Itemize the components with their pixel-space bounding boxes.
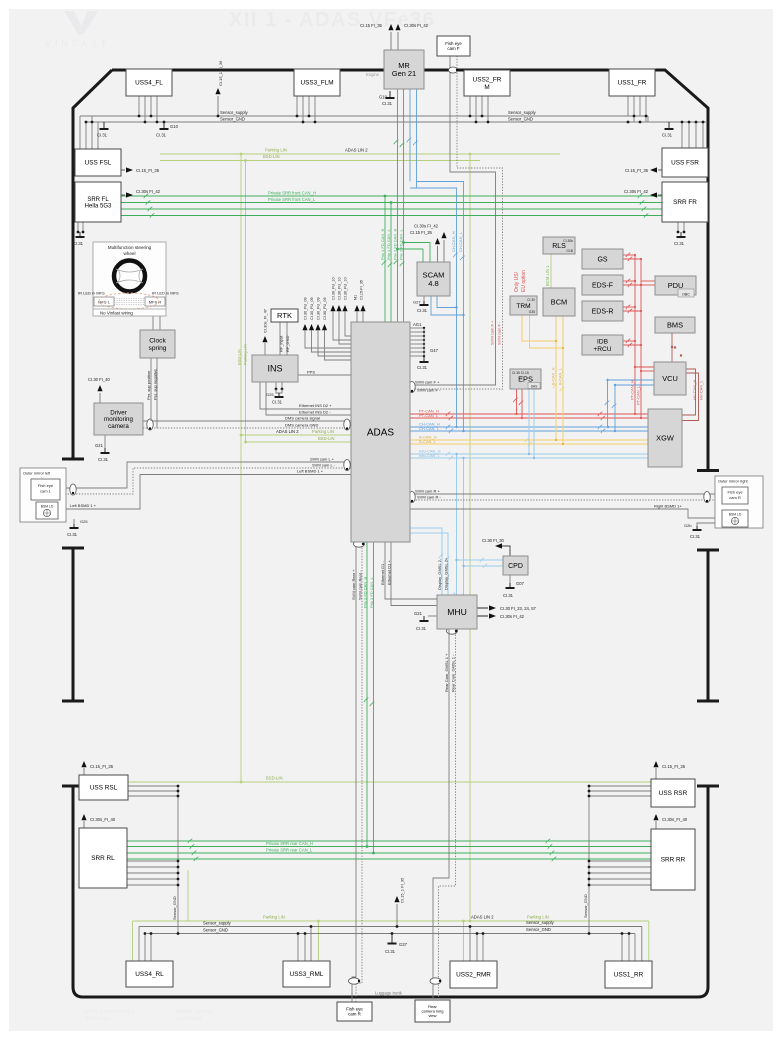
svg-text:Priv 3 FD CAN_L: Priv 3 FD CAN_L xyxy=(369,577,374,608)
svg-text:Private SRR front CAN_H: Private SRR front CAN_H xyxy=(268,191,316,196)
svg-text:Parking LIN: Parking LIN xyxy=(527,915,549,920)
svg-text:CI.15_1 FI_36: CI.15_1 FI_36 xyxy=(218,60,223,86)
svg-text:Ethernet D1 -: Ethernet D1 - xyxy=(380,561,385,585)
svg-text:CI.31: CI.31 xyxy=(662,133,673,138)
svg-text:CI.30: CI.30 xyxy=(527,298,535,302)
svg-text:Gen 21: Gen 21 xyxy=(392,69,416,78)
svg-text:Outer mirror left: Outer mirror left xyxy=(23,471,51,476)
svg-text:wheel: wheel xyxy=(123,251,135,256)
svg-text:TRM: TRM xyxy=(516,303,530,310)
svg-text:CI.15_FI_35: CI.15_FI_35 xyxy=(625,168,649,173)
svg-text:SRR FR: SRR FR xyxy=(673,199,697,206)
svg-text:CI.31: CI.31 xyxy=(690,534,701,539)
svg-text:Left BSMD 1 +: Left BSMD 1 + xyxy=(70,503,97,508)
svg-text:CI.35 CI.15: CI.35 CI.15 xyxy=(512,371,529,375)
svg-text:MHU: MHU xyxy=(447,607,467,617)
svg-text:Right BSMD 1+: Right BSMD 1+ xyxy=(654,504,682,509)
svg-text:B-CAN_H: B-CAN_H xyxy=(551,367,556,385)
svg-text:CI.30_FU_09: CI.30_FU_09 xyxy=(304,297,308,320)
svg-text:BSD-LIN: BSD-LIN xyxy=(266,776,283,781)
svg-text:CH-CAN_H: CH-CAN_H xyxy=(451,231,456,252)
svg-text:SVM cam Rear +: SVM cam Rear + xyxy=(351,569,356,600)
svg-text:RF_input: RF_input xyxy=(279,335,284,352)
svg-text:Per. sup positive: Per. sup positive xyxy=(146,370,151,400)
svg-text:Sensor_GND: Sensor_GND xyxy=(172,896,177,920)
svg-text:Per. sup negative: Per. sup negative xyxy=(153,368,158,400)
svg-text:wiring diagram rev 2.1: wiring diagram rev 2.1 xyxy=(85,1009,134,1015)
svg-text:G1B: G1B xyxy=(566,249,573,253)
svg-text:HV-CAN_H: HV-CAN_H xyxy=(692,380,697,400)
svg-text:INS: INS xyxy=(267,364,282,374)
svg-text:Private SRR rear CAN_L: Private SRR rear CAN_L xyxy=(266,848,313,853)
svg-text:DMS camera signal: DMS camera signal xyxy=(285,416,320,421)
svg-text:G10: G10 xyxy=(379,95,388,100)
svg-text:cam F: cam F xyxy=(447,46,460,51)
svg-text:XGW: XGW xyxy=(656,434,674,443)
svg-text:ADAS LIN 2: ADAS LIN 2 xyxy=(345,148,368,153)
svg-text:CH-CAN_L: CH-CAN_L xyxy=(419,426,440,431)
svg-text:BSM LD: BSM LD xyxy=(41,505,54,509)
svg-text:PT-CAN_L: PT-CAN_L xyxy=(636,385,641,405)
svg-text:CI.31: CI.31 xyxy=(73,241,84,246)
svg-text:IR LED in MFS: IR LED in MFS xyxy=(78,291,105,296)
svg-text:CI.31: CI.31 xyxy=(674,241,685,246)
svg-text:CI.30s_FI_47: CI.30s_FI_47 xyxy=(263,308,268,333)
svg-text:SVM cam Rear -: SVM cam Rear - xyxy=(358,570,363,600)
svg-text:Sensor_GND: Sensor_GND xyxy=(203,928,228,933)
svg-text:Sensor_GND: Sensor_GND xyxy=(508,117,533,122)
svg-text:Sensor_GND: Sensor_GND xyxy=(526,927,551,932)
svg-text:CI.31: CI.31 xyxy=(416,626,427,631)
svg-text:DMS camera GND: DMS camera GND xyxy=(285,423,318,428)
svg-text:G2b: G2b xyxy=(684,523,692,528)
svg-text:Parking LIN: Parking LIN xyxy=(263,915,285,920)
svg-text:CI.15 FI_35: CI.15 FI_35 xyxy=(360,23,383,28)
svg-text:G27: G27 xyxy=(413,300,421,305)
svg-text:SVM cam F +: SVM cam F + xyxy=(490,320,495,345)
svg-text:CI.15 FI_35: CI.15 FI_35 xyxy=(410,230,433,235)
svg-text:Hella 5G3: Hella 5G3 xyxy=(85,203,112,209)
svg-text:Parking LIN: Parking LIN xyxy=(243,344,248,365)
svg-text:CI.31: CI.31 xyxy=(503,593,514,598)
svg-text:Fish eye: Fish eye xyxy=(727,490,743,495)
svg-text:MFS R: MFS R xyxy=(149,300,162,305)
svg-text:Sensor_supply: Sensor_supply xyxy=(526,920,555,925)
svg-text:USS FSL: USS FSL xyxy=(85,160,112,167)
svg-text:CI.30_FU_09: CI.30_FU_09 xyxy=(323,297,327,320)
svg-text:PT-CAN_L: PT-CAN_L xyxy=(419,413,439,418)
svg-text:Only US/: Only US/ xyxy=(514,271,520,292)
svg-text:SVM cam R +: SVM cam R + xyxy=(415,489,440,494)
svg-text:GS: GS xyxy=(597,256,607,263)
svg-text:RLS: RLS xyxy=(552,243,566,250)
svg-text:Rear Cam_GMSL 1 +: Rear Cam_GMSL 1 + xyxy=(444,653,449,692)
svg-text:G07: G07 xyxy=(516,581,525,586)
svg-text:Parking LIN: Parking LIN xyxy=(312,429,334,434)
svg-text:USS RSR: USS RSR xyxy=(659,790,688,797)
svg-text:CI.15-FI_35: CI.15-FI_35 xyxy=(359,280,363,300)
svg-text:Display_GMSL 2+: Display_GMSL 2+ xyxy=(444,557,449,590)
svg-text:CI.30_FU_10: CI.30_FU_10 xyxy=(332,277,336,300)
svg-text:CI.31: CI.31 xyxy=(98,457,109,462)
svg-text:Clock: Clock xyxy=(149,338,166,345)
svg-text:G21: G21 xyxy=(414,611,423,616)
svg-text:Priv 1 FD CAN_H: Priv 1 FD CAN_H xyxy=(380,229,385,260)
svg-text:CI.30_FU_09: CI.30_FU_09 xyxy=(310,297,314,320)
svg-text:EU option: EU option xyxy=(521,270,527,292)
svg-text:B-CAN_L: B-CAN_L xyxy=(558,367,563,385)
svg-text:VCU: VCU xyxy=(662,374,678,383)
svg-text:Ethernet D1 +: Ethernet D1 + xyxy=(387,560,392,585)
svg-text:CI.30s FI_42: CI.30s FI_42 xyxy=(624,189,649,194)
svg-text:ADAS LIN 2: ADAS LIN 2 xyxy=(276,429,299,434)
svg-text:view: view xyxy=(428,1013,436,1018)
svg-text:CI.31: CI.31 xyxy=(67,532,78,537)
svg-text:BCM: BCM xyxy=(551,298,567,307)
svg-text:CI.30s FI_42: CI.30s FI_42 xyxy=(404,23,429,28)
svg-text:USS1_RR: USS1_RR xyxy=(614,972,644,979)
svg-text:CI.30_FU_10: CI.30_FU_10 xyxy=(338,277,342,300)
svg-text:Luggage trunk: Luggage trunk xyxy=(375,991,403,996)
svg-text:Priv 2 FD CAN_L: Priv 2 FD CAN_L xyxy=(399,229,404,260)
svg-text:CH-CAN_L: CH-CAN_L xyxy=(458,231,463,252)
svg-text:B-CAN_L: B-CAN_L xyxy=(419,439,437,444)
svg-text:CI.31: CI.31 xyxy=(385,949,396,954)
svg-text:USS3_RML: USS3_RML xyxy=(290,971,324,978)
svg-text:G21: G21 xyxy=(95,443,104,448)
svg-text:Sensor_GND: Sensor_GND xyxy=(220,117,245,122)
svg-text:OBC: OBC xyxy=(682,292,690,296)
svg-text:CI.30s_FI_40: CI.30s_FI_40 xyxy=(90,817,116,822)
svg-text:MFS L: MFS L xyxy=(98,300,111,305)
svg-text:HV-CAN_L: HV-CAN_L xyxy=(699,380,704,400)
svg-text:No Vinfast wiring: No Vinfast wiring xyxy=(100,311,133,316)
svg-text:confidential: confidential xyxy=(176,1016,201,1022)
svg-text:+RCU: +RCU xyxy=(593,346,611,353)
svg-text:Priv 1 FD CAN_L: Priv 1 FD CAN_L xyxy=(386,229,391,260)
svg-text:CI.31: CI.31 xyxy=(272,400,283,405)
svg-text:CI.15_FI_35: CI.15_FI_35 xyxy=(136,168,160,173)
svg-text:PT-CAN_H: PT-CAN_H xyxy=(630,380,635,400)
svg-text:VINFAST: VINFAST xyxy=(45,39,111,49)
svg-text:CI.31: CI.31 xyxy=(97,133,108,138)
svg-text:CI.30s_FI_40: CI.30s_FI_40 xyxy=(662,817,688,822)
svg-text:M1: M1 xyxy=(353,295,357,300)
svg-text:USS3_FLM: USS3_FLM xyxy=(300,80,333,87)
svg-text:cam R: cam R xyxy=(348,1012,361,1017)
svg-text:SVM cam L -: SVM cam L - xyxy=(312,463,336,468)
svg-text:USS1_FR: USS1_FR xyxy=(618,80,647,87)
svg-text:USS4_RL: USS4_RL xyxy=(135,971,164,978)
svg-text:Sensor_supply: Sensor_supply xyxy=(220,110,249,115)
svg-text:USS4_FL: USS4_FL xyxy=(135,80,163,87)
svg-text:4.8: 4.8 xyxy=(428,279,439,288)
svg-text:CI.30_FU_09: CI.30_FU_09 xyxy=(317,297,321,320)
svg-text:CI.30_FU_10: CI.30_FU_10 xyxy=(344,277,348,300)
svg-text:IDB: IDB xyxy=(597,339,609,346)
svg-text:CI.30 FI_30: CI.30 FI_30 xyxy=(482,538,505,543)
svg-text:Sensor_supply: Sensor_supply xyxy=(508,110,537,115)
svg-text:CI.30s FI_42: CI.30s FI_42 xyxy=(500,614,525,619)
svg-text:Multifunction steering: Multifunction steering xyxy=(108,245,152,250)
svg-text:BSD-LIN: BSD-LIN xyxy=(263,154,280,159)
svg-text:SAS: SAS xyxy=(531,384,538,388)
svg-text:BSM LD: BSM LD xyxy=(729,513,742,517)
svg-text:Priv 3 FD CAN_H: Priv 3 FD CAN_H xyxy=(362,577,367,608)
svg-text:BSD-LIN: BSD-LIN xyxy=(318,436,335,441)
svg-text:Fish eye: Fish eye xyxy=(38,483,54,488)
svg-text:CI.30b: CI.30b xyxy=(563,239,573,243)
svg-text:Info-CAN_L: Info-CAN_L xyxy=(419,453,441,458)
svg-text:G25: G25 xyxy=(80,519,88,524)
svg-text:CI.30 FI_40: CI.30 FI_40 xyxy=(88,377,111,382)
svg-text:BCM LIN 1: BCM LIN 1 xyxy=(545,265,550,286)
svg-text:SVM cam F -: SVM cam F - xyxy=(497,321,502,345)
svg-text:SRR RL: SRR RL xyxy=(91,855,115,862)
svg-text:Sensor_GND: Sensor_GND xyxy=(583,894,588,918)
svg-text:RTK: RTK xyxy=(277,311,292,320)
svg-text:Parking LIN: Parking LIN xyxy=(265,148,287,153)
svg-text:Private SRR front CAN_L: Private SRR front CAN_L xyxy=(268,197,316,202)
svg-text:CI.15_FI_35: CI.15_FI_35 xyxy=(662,764,686,769)
svg-text:G25: G25 xyxy=(266,392,274,397)
svg-text:G37: G37 xyxy=(399,942,408,947)
svg-text:G10: G10 xyxy=(170,124,179,129)
svg-text:EDS-F: EDS-F xyxy=(592,282,613,289)
svg-text:CI.31: CI.31 xyxy=(156,133,167,138)
svg-text:CPD: CPD xyxy=(508,563,523,570)
svg-text:AG1: AG1 xyxy=(413,322,422,327)
svg-text:Engine: Engine xyxy=(366,72,380,77)
svg-text:IR LED in MFS: IR LED in MFS xyxy=(152,291,179,296)
svg-text:camera: camera xyxy=(108,423,129,430)
svg-text:cam L: cam L xyxy=(40,489,52,494)
svg-text:EDS-R: EDS-R xyxy=(592,308,614,315)
svg-text:CI.30s FI_42: CI.30s FI_42 xyxy=(136,189,161,194)
svg-text:internal use only: internal use only xyxy=(176,1009,213,1015)
svg-text:M: M xyxy=(484,84,489,91)
svg-text:G35: G35 xyxy=(529,310,535,314)
svg-text:USS2_RMR: USS2_RMR xyxy=(456,972,491,979)
svg-text:SRR FL: SRR FL xyxy=(87,197,109,203)
svg-text:Outer mirror right: Outer mirror right xyxy=(718,479,749,484)
svg-text:SVM cam R -: SVM cam R - xyxy=(417,495,441,500)
svg-text:BMS: BMS xyxy=(667,321,683,330)
svg-text:Rear Cam_GMSL 1 -: Rear Cam_GMSL 1 - xyxy=(451,654,456,692)
svg-text:Priv 2 FD CAN_H: Priv 2 FD CAN_H xyxy=(393,229,398,260)
svg-text:CI.15_1 FI_35: CI.15_1 FI_35 xyxy=(400,877,405,903)
svg-text:cam R: cam R xyxy=(729,495,741,500)
svg-text:Ethernet INS D2 +: Ethernet INS D2 + xyxy=(299,403,332,408)
svg-text:CI.31: CI.31 xyxy=(382,101,393,106)
svg-text:ADAS layer: ADAS layer xyxy=(85,1016,111,1022)
svg-text:USS2_FR: USS2_FR xyxy=(473,77,502,84)
svg-text:Ethernet INS D2 -: Ethernet INS D2 - xyxy=(299,410,331,415)
svg-text:spring: spring xyxy=(149,345,167,352)
svg-text:CI.31: CI.31 xyxy=(417,365,428,370)
svg-text:USS RSL: USS RSL xyxy=(90,785,118,792)
svg-text:ADAS: ADAS xyxy=(367,428,395,439)
svg-text:Left BSMD 1 +: Left BSMD 1 + xyxy=(297,469,324,474)
svg-text:Display_GMSL 2-: Display_GMSL 2- xyxy=(437,558,442,590)
svg-text:USS FSR: USS FSR xyxy=(671,160,699,167)
svg-text:SVM cam L +: SVM cam L + xyxy=(310,457,335,462)
svg-text:Private SRR rear CAN_H: Private SRR rear CAN_H xyxy=(266,841,313,846)
svg-text:SVM cam F +: SVM cam F + xyxy=(415,380,440,385)
svg-text:SVM cam F -: SVM cam F - xyxy=(417,388,441,393)
svg-text:Sensor_supply: Sensor_supply xyxy=(203,921,232,926)
svg-text:CI.31: CI.31 xyxy=(417,308,428,313)
svg-text:BSD-LIN: BSD-LIN xyxy=(237,349,242,365)
svg-text:ADAS LIN 2: ADAS LIN 2 xyxy=(471,915,494,920)
svg-text:PPS: PPS xyxy=(307,370,315,375)
svg-text:G47: G47 xyxy=(430,348,439,353)
svg-text:CI.15_FI_35: CI.15_FI_35 xyxy=(90,764,114,769)
svg-text:SRR RR: SRR RR xyxy=(661,857,686,864)
svg-text:CI.30 FI_23, 24, 57: CI.30 FI_23, 24, 57 xyxy=(500,606,537,611)
svg-text:CI.30s FI_42: CI.30s FI_42 xyxy=(414,224,439,229)
svg-text:RF_GND: RF_GND xyxy=(285,335,290,352)
